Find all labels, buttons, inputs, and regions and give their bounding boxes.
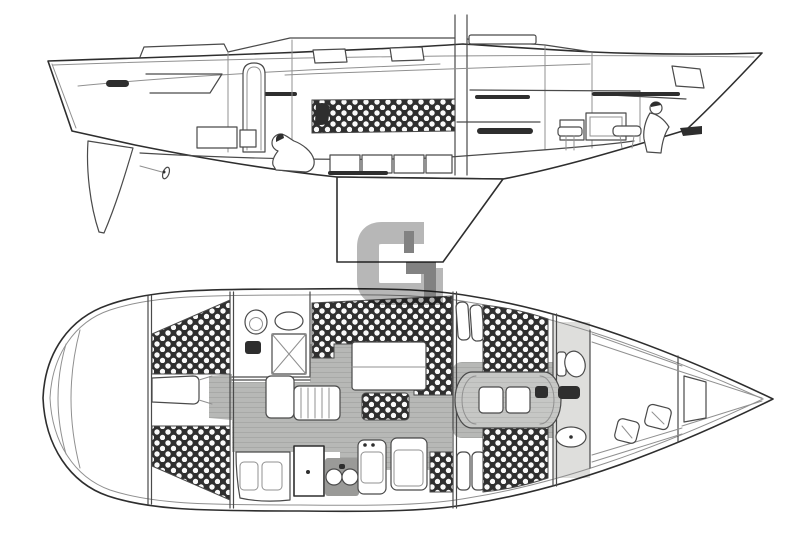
shelf-bold-line	[592, 92, 680, 96]
cabin-window-fwd	[390, 47, 424, 61]
settee-drawers	[328, 155, 452, 175]
bow-hatch-2	[644, 403, 673, 430]
seated-figure-aft	[272, 134, 314, 172]
engine-box	[197, 127, 256, 148]
berth-pillow-right	[506, 387, 530, 413]
fwd-seat-lower	[483, 426, 548, 492]
cushion-shadow	[315, 103, 330, 125]
aft-berth-walkway	[152, 376, 199, 404]
forward-cabin	[455, 305, 561, 492]
fwd-seat-upper	[483, 305, 548, 372]
toilet-side	[613, 126, 641, 136]
sink-side	[558, 127, 582, 136]
quarter-berth-lower	[430, 452, 485, 492]
galley-sink-left	[326, 469, 342, 485]
bow-shelf-wedge	[680, 126, 702, 136]
mast	[455, 15, 467, 175]
seated-figure-forward	[644, 102, 669, 153]
locker-dark	[535, 386, 548, 398]
berth-edge-bar-lower	[477, 128, 533, 134]
hull-badge	[106, 80, 129, 87]
berth-pillow-left	[479, 387, 503, 413]
settee-cushion-band	[312, 99, 455, 133]
interior-plan-view	[43, 289, 773, 512]
washbasin-aft	[275, 312, 303, 330]
quarter-berth-upper-pillows	[456, 302, 485, 342]
drawing-canvas	[0, 0, 800, 538]
chain-locker	[684, 376, 706, 422]
berth-edge-bar-upper	[475, 95, 530, 99]
sink-dark-fwd	[558, 386, 580, 399]
ottoman	[362, 393, 409, 420]
aft-berth-upper	[152, 300, 230, 374]
cabinet-by-stairs	[266, 376, 294, 418]
cabin-window-aft	[313, 49, 347, 63]
faucet	[339, 464, 345, 469]
saloon-table	[352, 342, 426, 390]
bow-hatch-1	[614, 418, 641, 445]
cockpit-seat-lines	[146, 74, 222, 93]
sink-dark-aft	[245, 341, 261, 354]
anchor-locker-lid	[672, 66, 704, 88]
transom-curves	[58, 330, 80, 468]
galley-sink-right	[342, 469, 358, 485]
rudder	[87, 141, 133, 233]
propeller	[140, 166, 171, 180]
aft-head	[245, 310, 306, 374]
sailboat-layout-drawing: G	[0, 0, 800, 538]
aft-berth-lower	[152, 426, 230, 500]
sliding-hatch	[469, 35, 536, 44]
